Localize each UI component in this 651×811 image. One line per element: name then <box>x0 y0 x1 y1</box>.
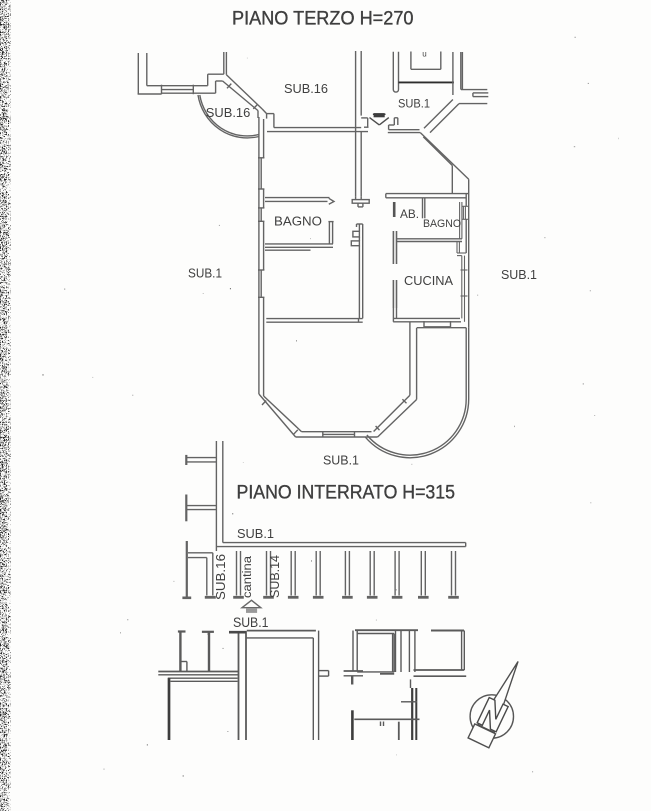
svg-text:SUB.1: SUB.1 <box>398 96 430 110</box>
svg-text:BAGNO: BAGNO <box>274 215 322 229</box>
svg-text:SUB.1: SUB.1 <box>501 268 537 282</box>
svg-text:AB.: AB. <box>400 209 419 221</box>
svg-text:SUB.1: SUB.1 <box>188 267 222 281</box>
svg-text:SUB.16: SUB.16 <box>284 82 328 96</box>
svg-text:SUB.14: SUB.14 <box>268 555 282 598</box>
svg-text:SUB.16: SUB.16 <box>214 554 228 600</box>
svg-text:SUB.1: SUB.1 <box>237 527 274 541</box>
svg-text:BAGNO: BAGNO <box>423 218 461 230</box>
svg-text:u: u <box>422 49 426 58</box>
svg-text:cantina: cantina <box>242 555 254 598</box>
svg-text:SUB.1: SUB.1 <box>323 453 359 467</box>
svg-text:SUB.16: SUB.16 <box>206 106 251 120</box>
svg-text:PIANO TERZO H=270: PIANO TERZO H=270 <box>232 8 414 30</box>
svg-text:SUB.1: SUB.1 <box>233 615 269 630</box>
svg-text:PIANO INTERRATO H=315: PIANO INTERRATO H=315 <box>237 482 456 504</box>
svg-text:CUCINA: CUCINA <box>404 274 454 288</box>
